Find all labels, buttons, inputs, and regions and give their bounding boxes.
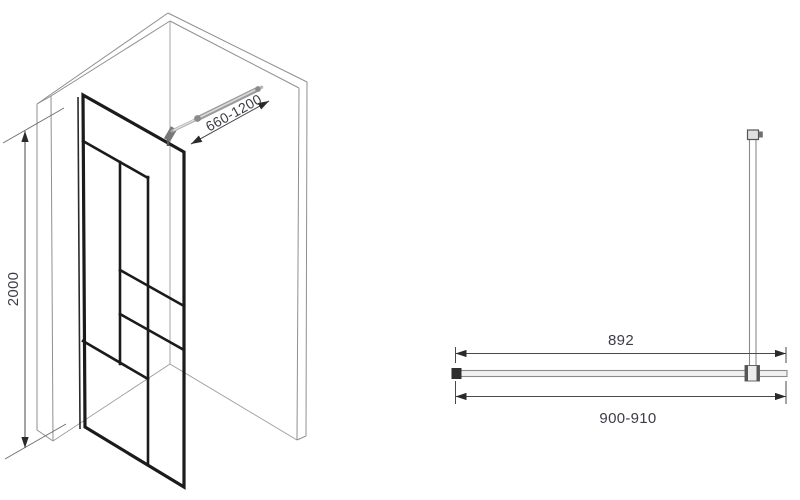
support-bar-tip-cap	[260, 86, 263, 89]
plan-panel-bar	[452, 371, 787, 377]
height-dimension: 2000	[3, 108, 66, 459]
grid-rail-middle-2	[120, 314, 184, 350]
isometric-view: 2000 660-1200	[3, 13, 307, 487]
plan-view: 892 900-910	[452, 130, 788, 427]
left-wall-inner-edge	[51, 96, 53, 441]
height-dim-extension-top	[3, 108, 64, 143]
right-wall-top-inner-edge	[170, 21, 299, 88]
wall-mount-profile	[78, 97, 80, 429]
height-dimension-label: 2000	[5, 272, 22, 307]
overall-width-dimension: 900-910	[456, 381, 787, 427]
wall-corner	[37, 13, 307, 441]
plan-support-bar-tube	[750, 139, 757, 367]
right-wall-bottom-corner-edge	[297, 436, 306, 440]
right-wall-top-outer-edge	[168, 13, 307, 82]
plan-wall-bracket	[748, 130, 759, 140]
shower-screen-technical-drawing: 2000 660-1200	[0, 0, 800, 500]
glass-width-dimension-label: 892	[608, 332, 634, 349]
left-wall-top-front-edge	[37, 96, 51, 104]
glass-width-dimension: 892	[456, 332, 787, 363]
drawing-page: 2000 660-1200	[0, 0, 800, 500]
support-bar-joint	[194, 115, 201, 122]
grid-rail-lower	[83, 341, 148, 379]
left-wall-top-inner-edge	[51, 21, 170, 96]
glass-panel	[78, 95, 184, 487]
right-wall-floor-edge	[170, 364, 297, 440]
plan-glass-clamp-left-jaw	[745, 366, 748, 382]
plan-wall-bracket-nub	[759, 132, 763, 138]
grid-rail-middle-1	[120, 270, 184, 306]
left-wall-floor-edge	[53, 364, 170, 441]
left-wall-top-outer-edge	[37, 13, 168, 104]
plan-glass-panel	[452, 368, 788, 379]
right-wall-back-edge	[306, 82, 307, 436]
grid-rail-upper	[83, 141, 148, 178]
height-dim-extension-bottom	[5, 424, 66, 459]
overall-width-dimension-label: 900-910	[599, 410, 656, 427]
plan-support-bar	[745, 130, 763, 381]
right-wall-front-edge	[297, 88, 299, 440]
panel-outline	[83, 95, 184, 487]
plan-glass-clamp-right-jaw	[757, 366, 760, 382]
plan-wall-profile-cap	[452, 368, 462, 379]
